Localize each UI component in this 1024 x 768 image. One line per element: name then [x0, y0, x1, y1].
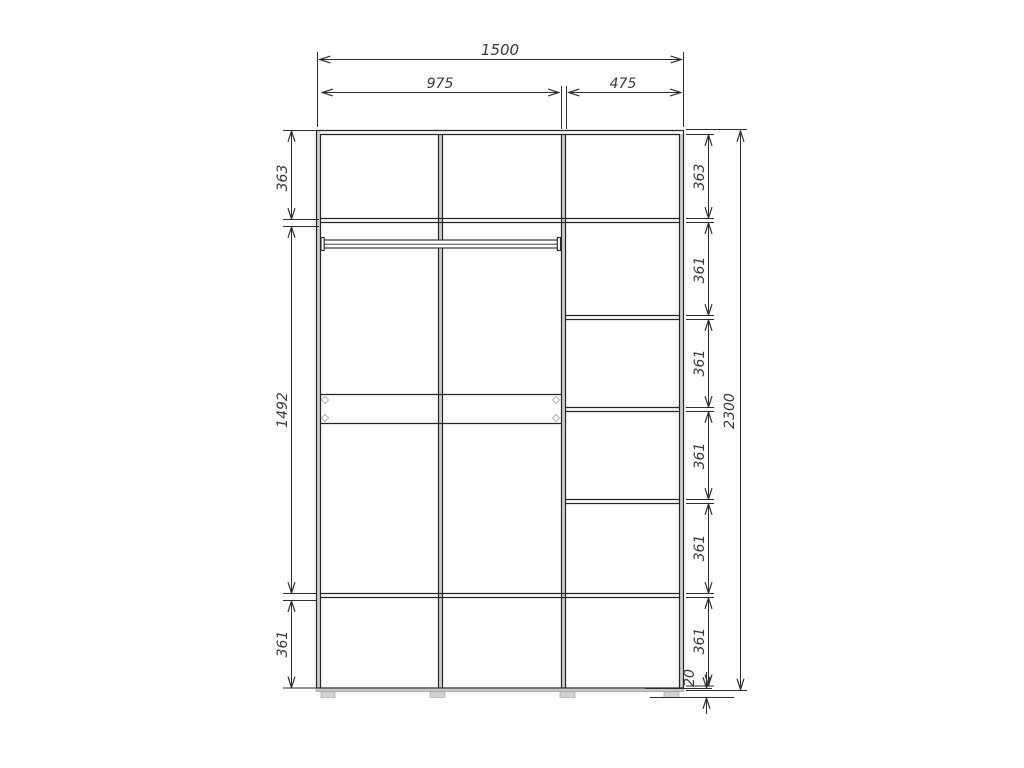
right-section-shelf-edges	[566, 316, 680, 504]
connector-diamond	[322, 415, 329, 422]
dim-label-left-section-width: 975	[427, 76, 454, 92]
dim-section-widths: 975 475	[322, 76, 681, 129]
dim-label-right-segment-1: 363	[692, 164, 708, 191]
foot	[430, 692, 445, 698]
drawing-canvas: 1500 975 475 363 1492 361	[0, 0, 1024, 768]
dim-label-right-segment-4: 361	[692, 443, 708, 470]
dimension-annotations: 1500 975 475 363 1492 361	[275, 41, 747, 714]
top-panel-edges	[316, 131, 684, 135]
dim-label-total-height: 2300	[722, 393, 738, 429]
extension-lines	[686, 135, 714, 687]
connector-diamond	[553, 415, 560, 422]
extension-lines	[562, 86, 567, 129]
connector-diamond	[322, 397, 329, 404]
dim-label-right-segment-3: 361	[692, 350, 708, 377]
dim-label-left-middle-height: 1492	[275, 392, 291, 428]
dim-right-column: 363 361 361 361 361 361	[686, 135, 714, 687]
dim-label-right-section-width: 475	[610, 76, 637, 92]
base-strip	[316, 689, 684, 692]
lower-shelf-edges	[320, 594, 680, 598]
dim-label-left-bottom-height: 361	[275, 631, 291, 658]
rail-left-bracket	[321, 238, 324, 251]
vertical-panel-edges	[317, 130, 684, 688]
feet	[321, 692, 679, 698]
dim-label-right-segment-6: 361	[692, 628, 708, 655]
dim-label-left-top-height: 363	[275, 165, 291, 192]
foot	[560, 692, 575, 698]
dim-total-height: 2300	[686, 130, 747, 691]
dim-label-plinth-height: 20	[682, 669, 698, 687]
connector-diamond	[553, 397, 560, 404]
dim-label-right-segment-5: 361	[692, 535, 708, 562]
dim-label-right-segment-2: 361	[692, 257, 708, 284]
cabinet-structure	[316, 130, 684, 697]
dim-left-column: 363 1492 361	[275, 131, 319, 689]
rail-right-bracket	[557, 238, 560, 251]
dim-label-total-width: 1500	[481, 41, 519, 59]
upper-shelf-edges	[320, 219, 680, 223]
foot	[664, 692, 679, 698]
foot	[321, 692, 335, 698]
wardrobe-technical-drawing: 1500 975 475 363 1492 361	[0, 0, 1024, 768]
